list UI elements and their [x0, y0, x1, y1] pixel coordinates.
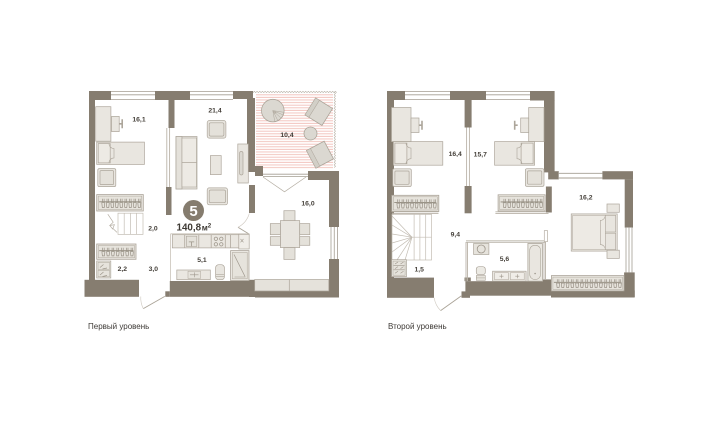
svg-text:Первый уровень: Первый уровень — [88, 322, 149, 331]
svg-text:2,0: 2,0 — [148, 225, 158, 232]
svg-text:16,0: 16,0 — [301, 200, 314, 207]
svg-text:16,4: 16,4 — [449, 151, 462, 158]
svg-text:2,2: 2,2 — [118, 266, 128, 273]
svg-text:Второй уровень: Второй уровень — [388, 322, 447, 331]
svg-text:15,7: 15,7 — [474, 151, 487, 158]
svg-text:16,2: 16,2 — [579, 195, 592, 202]
svg-text:9,4: 9,4 — [451, 232, 461, 239]
svg-text:10,4: 10,4 — [280, 132, 293, 139]
svg-text:1,5: 1,5 — [414, 266, 424, 273]
svg-text:5: 5 — [189, 203, 197, 220]
svg-text:3,0: 3,0 — [149, 266, 159, 273]
svg-text:5,1: 5,1 — [197, 257, 207, 264]
svg-text:5,6: 5,6 — [500, 256, 510, 263]
svg-text:140,8 м2: 140,8 м2 — [177, 222, 212, 233]
svg-text:16,1: 16,1 — [132, 117, 145, 124]
svg-text:21,4: 21,4 — [208, 108, 221, 115]
